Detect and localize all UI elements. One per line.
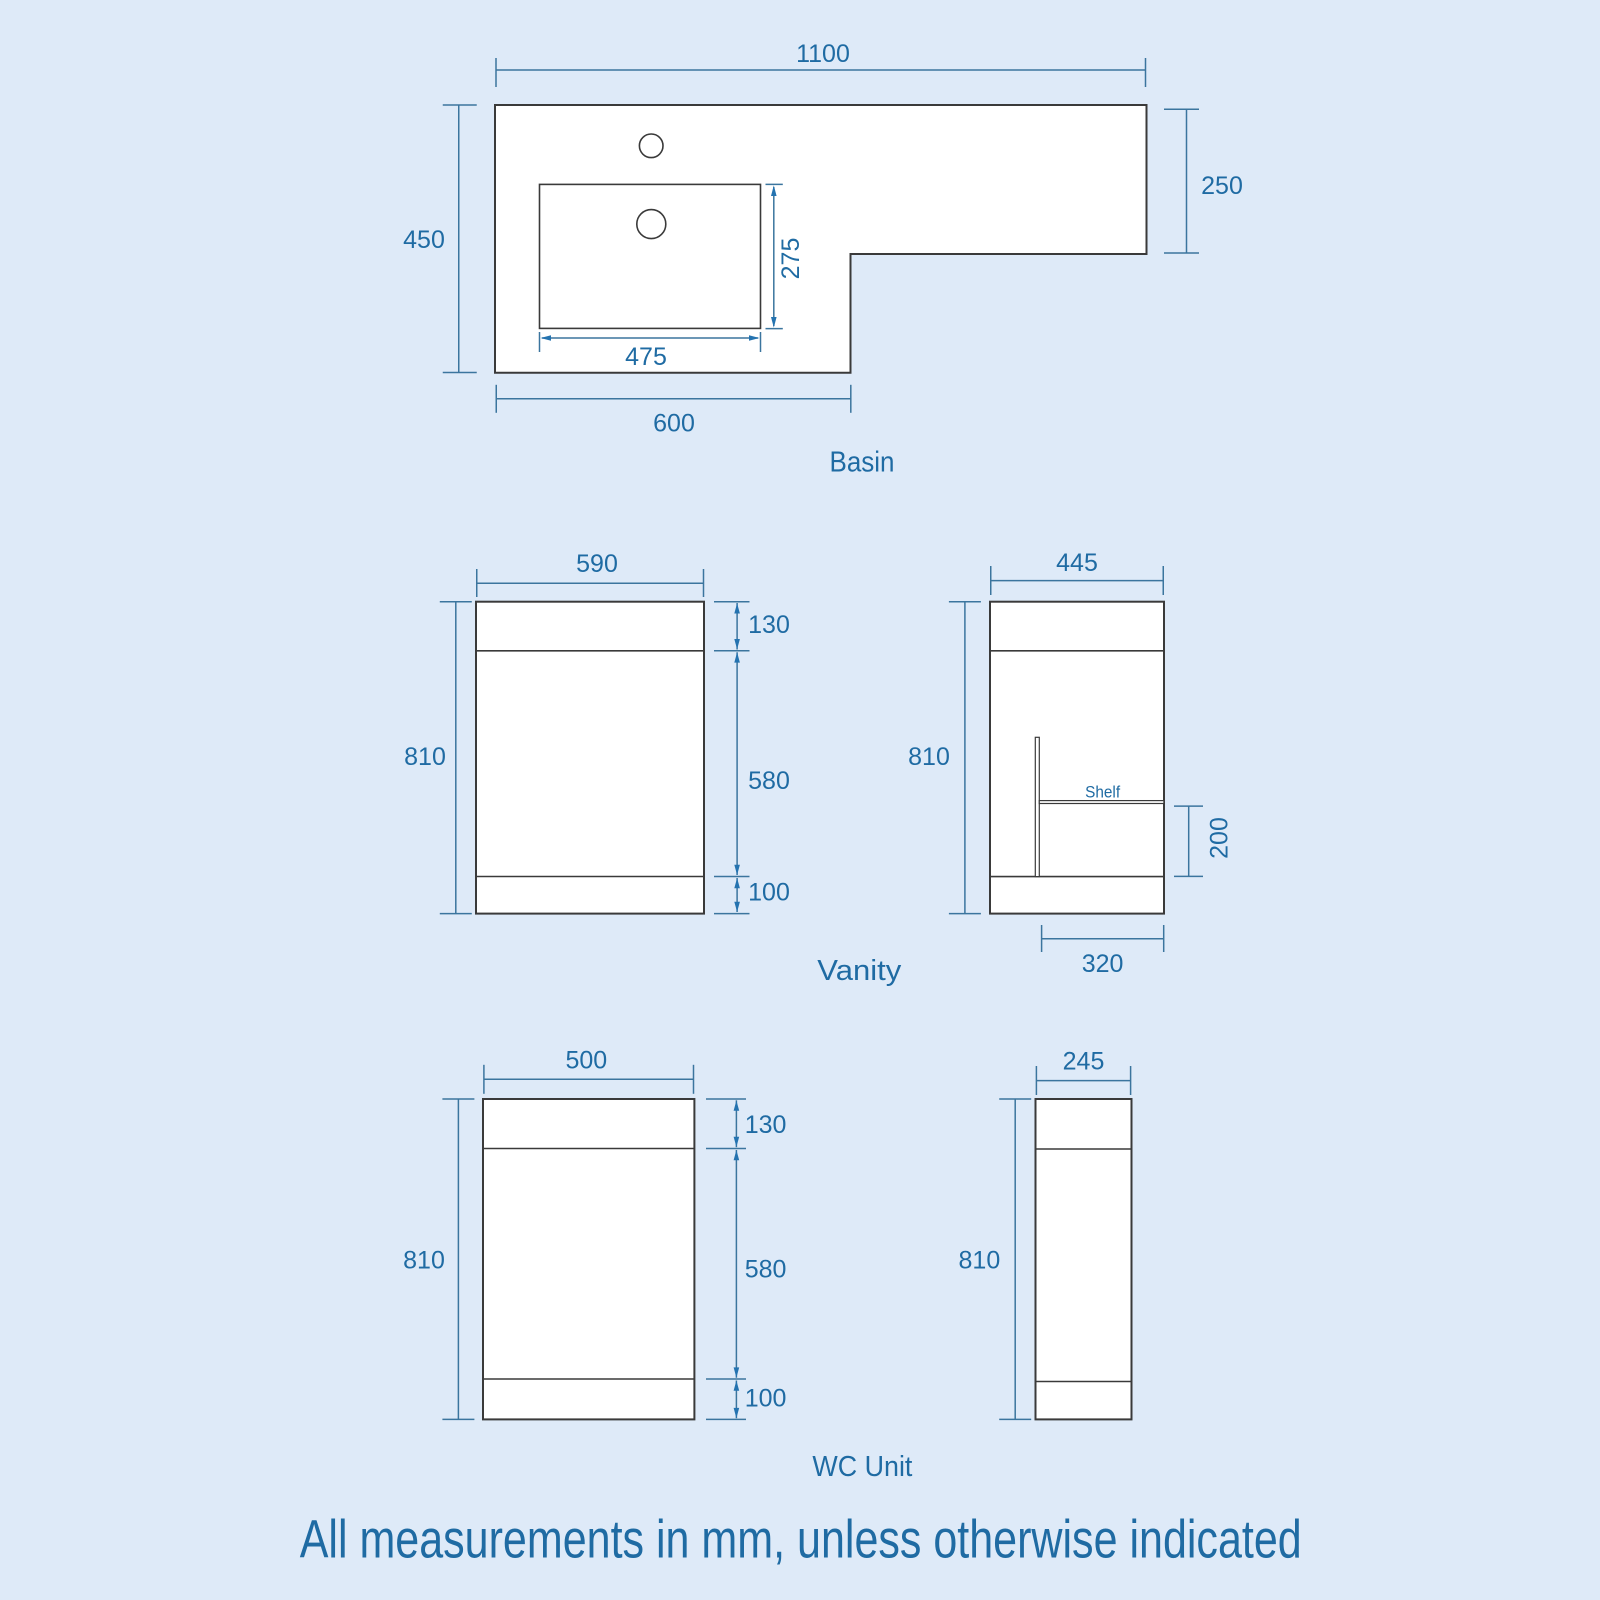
svg-text:Basin: Basin xyxy=(830,446,895,478)
svg-text:130: 130 xyxy=(745,1111,787,1139)
svg-text:275: 275 xyxy=(777,238,805,280)
svg-text:200: 200 xyxy=(1206,817,1234,859)
svg-text:445: 445 xyxy=(1056,549,1098,577)
svg-text:590: 590 xyxy=(576,550,618,578)
svg-text:810: 810 xyxy=(403,1246,445,1274)
svg-text:1100: 1100 xyxy=(796,40,850,68)
svg-text:245: 245 xyxy=(1063,1048,1105,1076)
svg-text:250: 250 xyxy=(1201,172,1243,200)
svg-text:475: 475 xyxy=(625,343,667,371)
svg-text:100: 100 xyxy=(745,1385,787,1413)
svg-text:320: 320 xyxy=(1082,950,1124,978)
svg-text:450: 450 xyxy=(403,226,445,254)
svg-text:Shelf: Shelf xyxy=(1085,782,1120,801)
svg-text:Vanity: Vanity xyxy=(817,955,902,987)
svg-text:580: 580 xyxy=(748,767,790,795)
svg-text:580: 580 xyxy=(745,1255,787,1283)
svg-text:130: 130 xyxy=(748,611,790,639)
svg-text:500: 500 xyxy=(565,1047,607,1075)
svg-text:810: 810 xyxy=(908,743,950,771)
svg-text:810: 810 xyxy=(959,1246,1001,1274)
svg-text:All measurements in mm, unless: All measurements in mm, unless otherwise… xyxy=(300,1510,1302,1570)
svg-text:100: 100 xyxy=(748,879,790,907)
svg-text:600: 600 xyxy=(653,410,695,438)
svg-text:WC Unit: WC Unit xyxy=(812,1451,912,1483)
svg-text:810: 810 xyxy=(404,743,446,771)
